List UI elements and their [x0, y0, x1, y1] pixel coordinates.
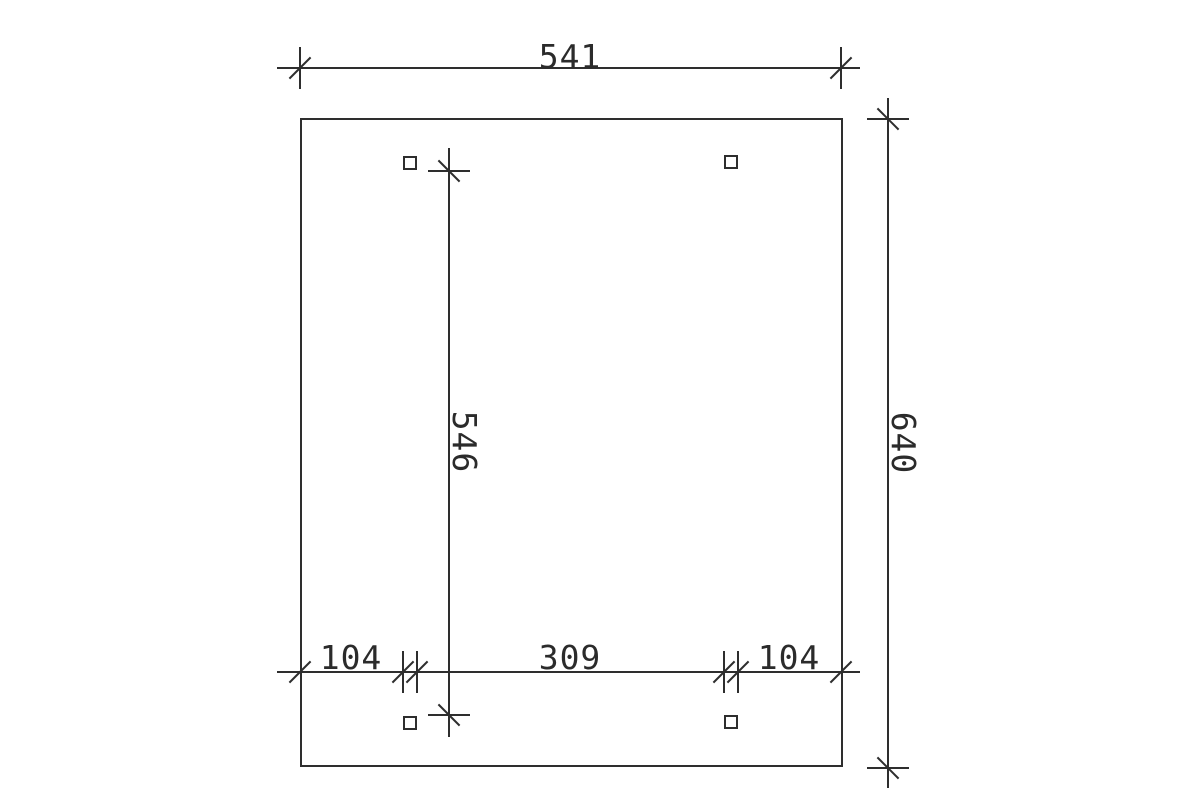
- bottom-dimension-label-right: 104: [758, 641, 821, 674]
- post-bottom-left: [403, 716, 417, 730]
- inner-dimension-label: 546: [447, 377, 483, 507]
- right-dimension-label: 640: [886, 378, 922, 508]
- bottom-dimension-label-left: 104: [320, 641, 383, 674]
- top-dimension-label: 541: [539, 40, 602, 73]
- post-top-right: [724, 155, 738, 169]
- bottom-dimension-label-middle: 309: [539, 641, 602, 674]
- drawing-canvas: 541 640 546 104 309 104: [0, 0, 1200, 800]
- post-bottom-right: [724, 715, 738, 729]
- post-top-left: [403, 156, 417, 170]
